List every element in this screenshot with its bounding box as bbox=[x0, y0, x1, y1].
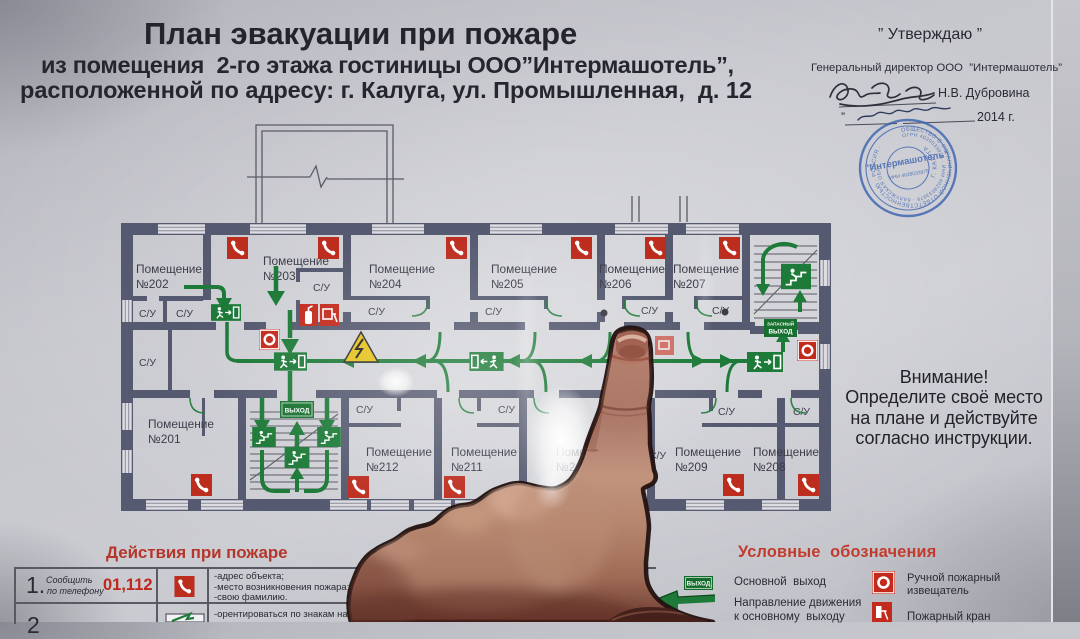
svg-text:ВЫХОД: ВЫХОД bbox=[768, 329, 793, 336]
svg-text:Помещение: Помещение bbox=[753, 445, 819, 459]
svg-text:ВЫХОД: ВЫХОД bbox=[687, 581, 711, 588]
svg-text:С/У: С/У bbox=[139, 309, 156, 320]
svg-text:№201: №201 bbox=[148, 432, 181, 446]
svg-text:С/У: С/У bbox=[139, 358, 156, 369]
svg-text:ИНН 4029033976: ИНН 4029033976 bbox=[889, 168, 930, 181]
svg-text:ЗАПАСНЫЙ: ЗАПАСНЫЙ bbox=[767, 320, 794, 327]
svg-text:С/У: С/У bbox=[176, 309, 193, 320]
svg-text:Помещение: Помещение bbox=[136, 262, 202, 276]
svg-text:Помещение: Помещение bbox=[148, 417, 214, 431]
svg-text:№202: №202 bbox=[136, 277, 169, 291]
svg-text:№208: №208 bbox=[753, 460, 786, 474]
